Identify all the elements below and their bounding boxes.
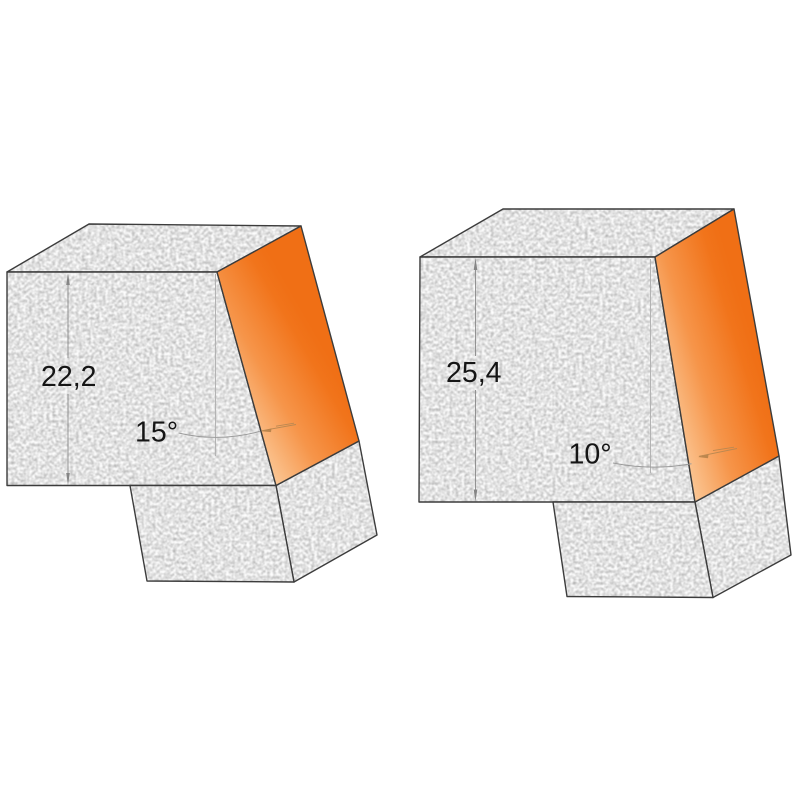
svg-text:15°: 15° (135, 417, 178, 449)
svg-text:25,4: 25,4 (446, 357, 502, 389)
svg-text:10°: 10° (569, 439, 612, 471)
svg-text:22,2: 22,2 (41, 361, 96, 393)
